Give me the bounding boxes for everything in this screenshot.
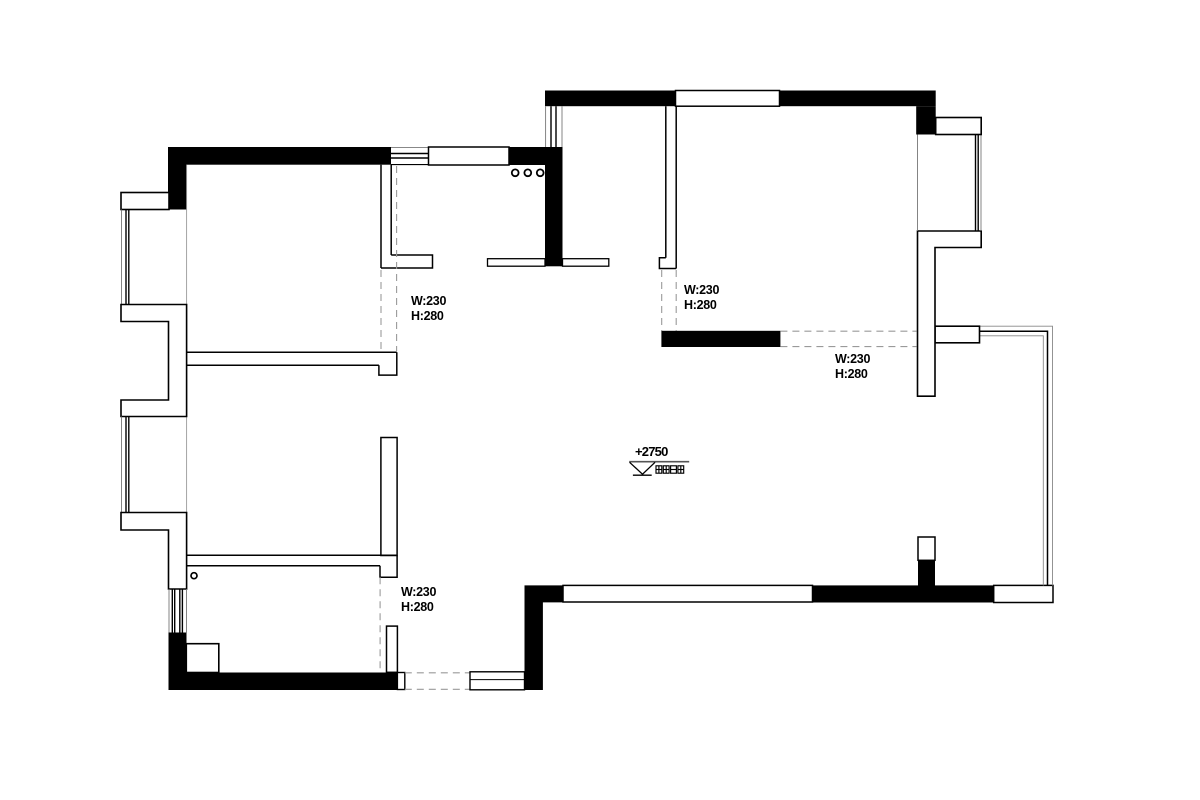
svg-text:H:280: H:280 [401,600,434,614]
svg-text:H:280: H:280 [835,367,868,381]
svg-text:H:280: H:280 [411,309,444,323]
svg-text:W:230: W:230 [401,585,436,599]
svg-text:H:280: H:280 [684,298,717,312]
svg-text:W:230: W:230 [411,294,446,308]
svg-text:W:230: W:230 [835,352,870,366]
svg-text:W:230: W:230 [684,283,719,297]
svg-text:+2750: +2750 [635,444,668,459]
